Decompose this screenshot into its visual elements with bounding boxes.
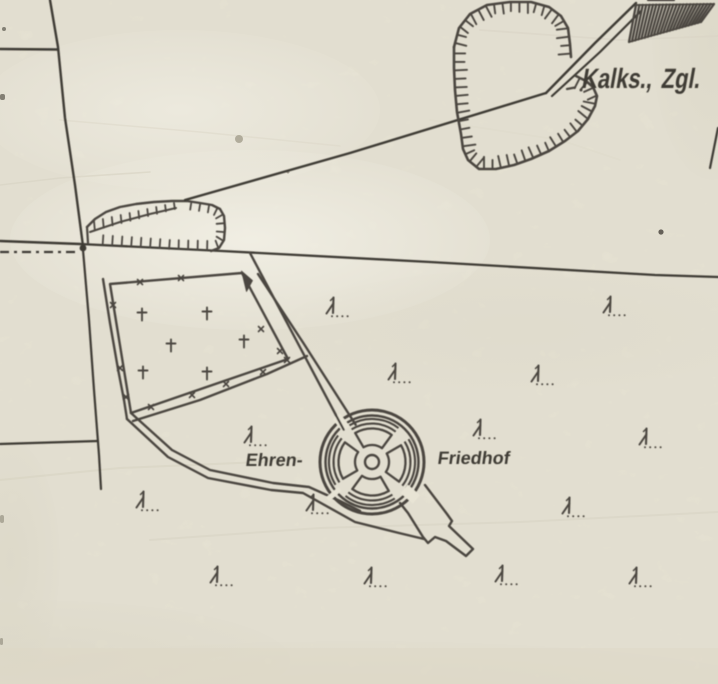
svg-text:Friedhof: Friedhof [436,448,512,468]
svg-text:Zgl.: Zgl. [659,64,703,95]
svg-text:Kalks.,: Kalks., [580,64,656,95]
svg-text:Ehren-: Ehren- [244,450,304,470]
